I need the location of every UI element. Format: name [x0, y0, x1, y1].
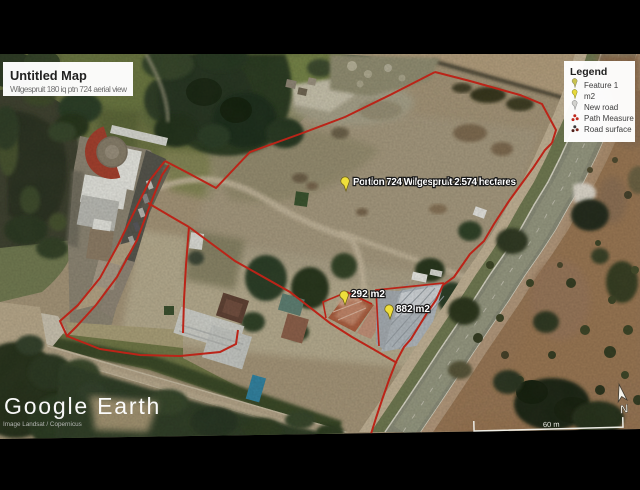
svg-text:Legend: Legend: [570, 66, 607, 78]
svg-text:Portion 724 Wilgespruit 2.574: Portion 724 Wilgespruit 2.574 hectares: [353, 177, 516, 188]
svg-text:882 m2: 882 m2: [396, 304, 430, 315]
svg-text:New road: New road: [584, 103, 618, 112]
svg-text:Path Measure: Path Measure: [584, 114, 634, 123]
svg-text:Untitled Map: Untitled Map: [10, 68, 87, 83]
svg-text:292 m2: 292 m2: [351, 289, 385, 300]
svg-text:Google Earth: Google Earth: [4, 393, 161, 419]
svg-text:60 m: 60 m: [543, 420, 560, 429]
svg-text:Image Landsat / Copernicus: Image Landsat / Copernicus: [3, 421, 82, 428]
svg-text:Feature 1: Feature 1: [584, 81, 619, 90]
svg-text:Road surface: Road surface: [584, 125, 632, 134]
svg-text:m2: m2: [584, 92, 596, 101]
svg-text:Wilgespruit 180 iq ptn 724 aer: Wilgespruit 180 iq ptn 724 aerial view: [10, 85, 127, 94]
